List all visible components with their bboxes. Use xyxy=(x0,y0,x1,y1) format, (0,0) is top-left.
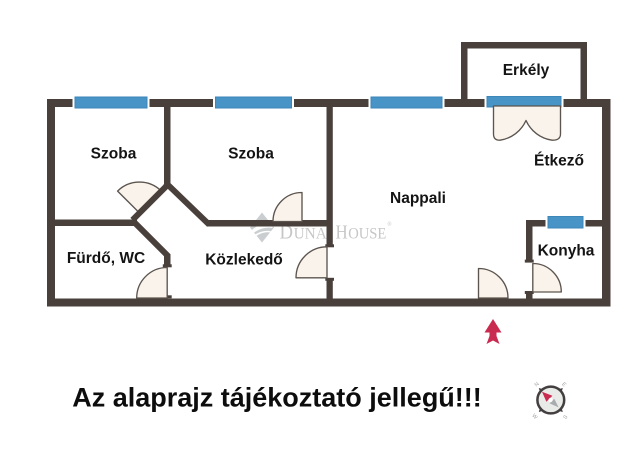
svg-text:Nappali: Nappali xyxy=(390,190,446,207)
svg-text:Konyha: Konyha xyxy=(538,243,595,260)
svg-text:Erkély: Erkély xyxy=(503,62,550,79)
svg-text:Közlekedő: Közlekedő xyxy=(205,252,283,269)
svg-text:®: ® xyxy=(387,221,392,228)
svg-text:OUSE: OUSE xyxy=(348,225,386,242)
svg-text:Az alaprajz tájékoztató jelleg: Az alaprajz tájékoztató jellegű!!! xyxy=(72,383,482,413)
svg-text:Étkező: Étkező xyxy=(534,153,584,170)
svg-text:H: H xyxy=(336,222,348,243)
svg-text:Fürdő, WC: Fürdő, WC xyxy=(67,250,145,267)
svg-text:Szoba: Szoba xyxy=(91,146,137,163)
svg-text:UNA: UNA xyxy=(294,225,328,242)
svg-text:Szoba: Szoba xyxy=(228,146,274,163)
